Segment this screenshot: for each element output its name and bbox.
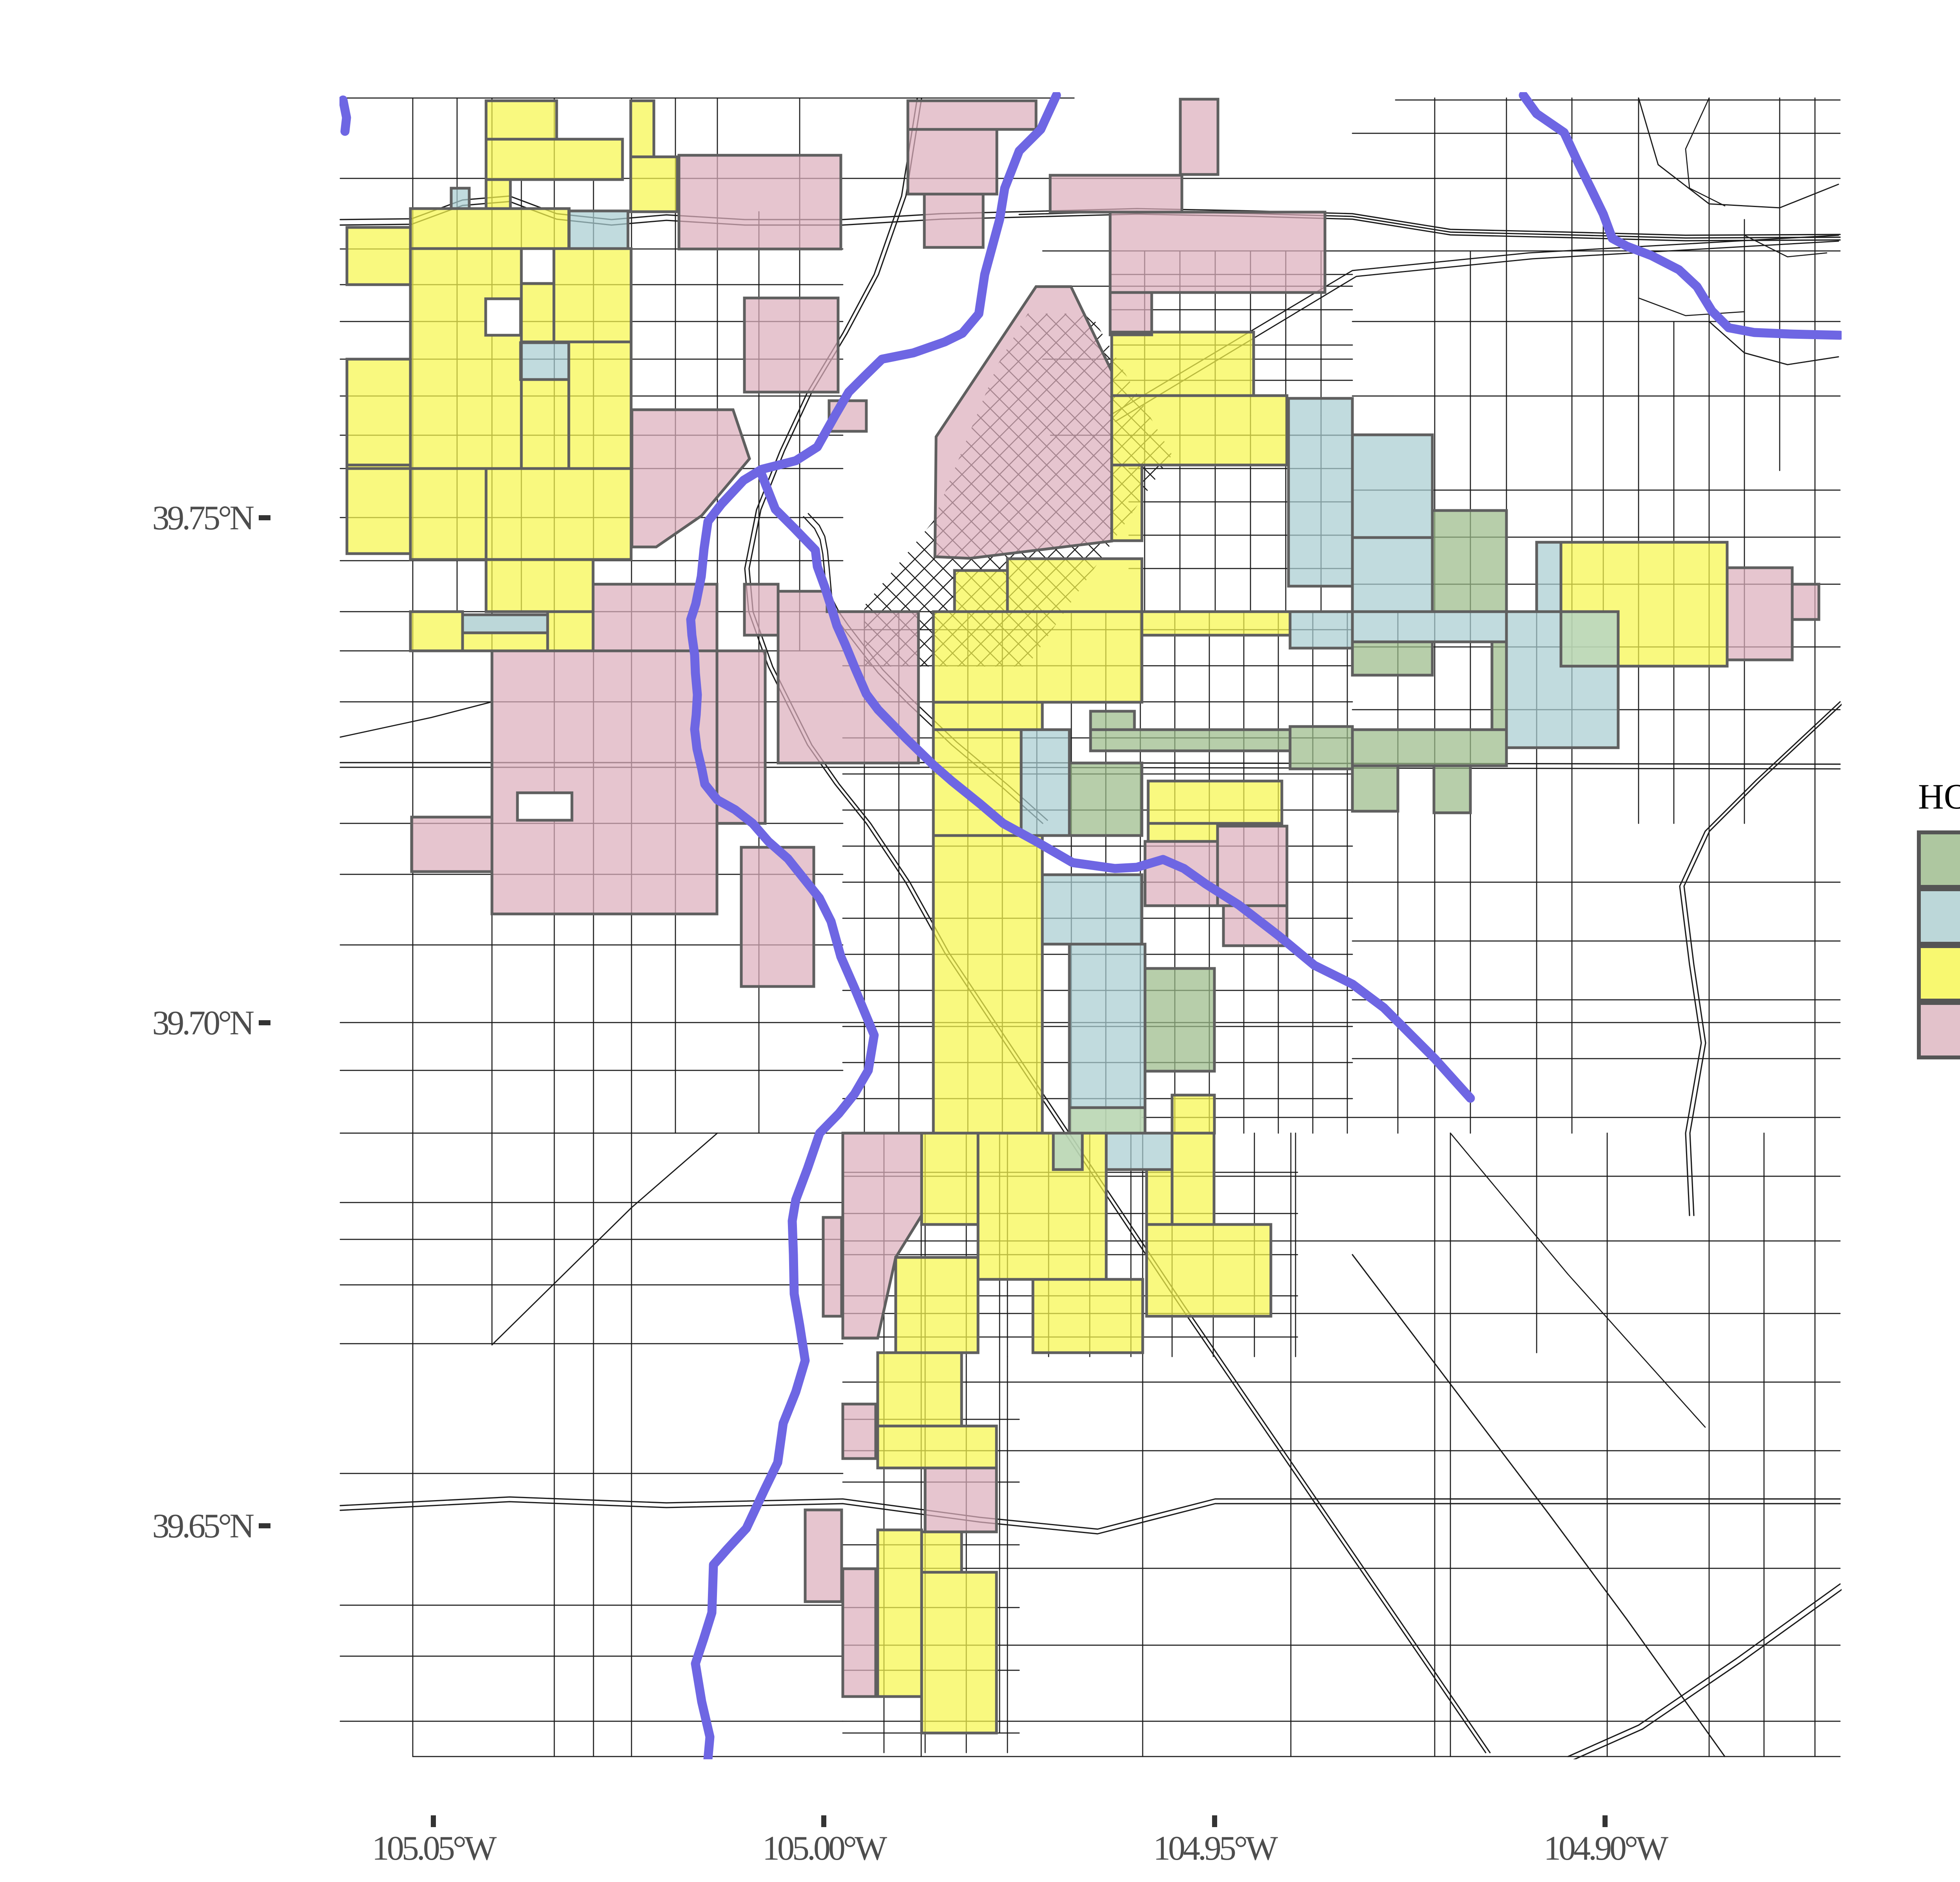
svg-text:39.70°N: 39.70°N bbox=[152, 1004, 254, 1042]
svg-text:39.65°N: 39.65°N bbox=[152, 1507, 254, 1545]
svg-text:39.75°N: 39.75°N bbox=[152, 499, 254, 537]
svg-text:105.05°W: 105.05°W bbox=[372, 1829, 497, 1867]
svg-text:HOLC Categories: HOLC Categories bbox=[1918, 777, 1960, 816]
svg-text:104.95°W: 104.95°W bbox=[1153, 1829, 1278, 1867]
svg-text:105.00°W: 105.00°W bbox=[762, 1829, 887, 1867]
svg-text:104.90°W: 104.90°W bbox=[1544, 1829, 1668, 1867]
